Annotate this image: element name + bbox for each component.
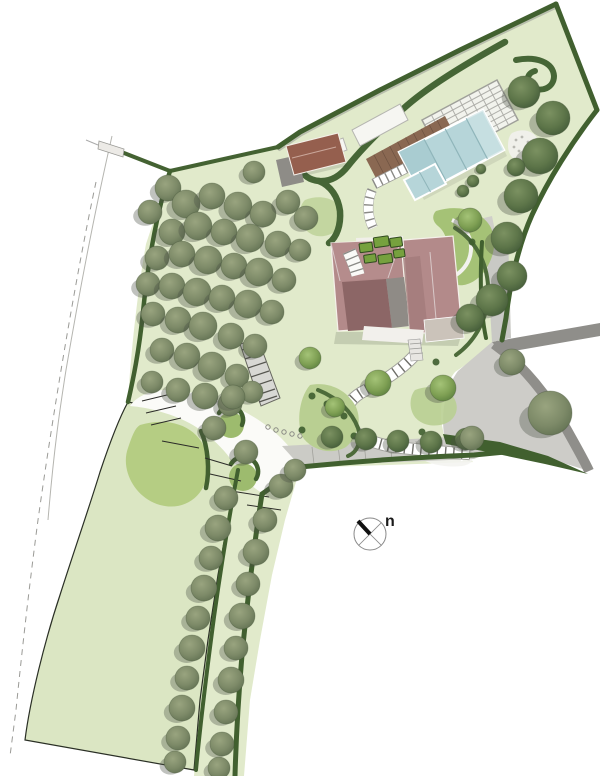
compass-needle (358, 521, 370, 534)
tree-canopy (138, 200, 162, 224)
tree-canopy (289, 239, 311, 261)
tree-canopy (169, 695, 195, 721)
tree-canopy (141, 371, 163, 393)
site-plan: n (0, 0, 600, 776)
tree-canopy (218, 667, 244, 693)
tree-canopy (179, 635, 205, 661)
tree-canopy (224, 636, 248, 660)
tree-canopy (234, 440, 258, 464)
tree-canopy (189, 312, 217, 340)
tree-canopy (365, 370, 391, 396)
north-compass: n (354, 513, 395, 550)
planter-box (364, 254, 377, 264)
tree-canopy (457, 185, 469, 197)
tree-canopy (221, 385, 245, 409)
planter-box (359, 242, 373, 253)
tree-canopy (499, 349, 525, 375)
tree-canopy (420, 431, 442, 453)
tree-canopy (214, 486, 238, 510)
tree-canopy (299, 347, 321, 369)
tree-canopy (294, 206, 318, 230)
wall-tail (86, 140, 98, 145)
tree-canopy (272, 268, 296, 292)
tree-canopy (497, 261, 527, 291)
tree-canopy (507, 158, 525, 176)
tree-canopy (476, 164, 486, 174)
courtyard-steps (349, 251, 358, 275)
tree-canopy (175, 666, 199, 690)
tree-canopy (458, 208, 482, 232)
planter-box (373, 236, 389, 248)
tree-canopy (236, 572, 260, 596)
tree-canopy (186, 606, 210, 630)
tree-canopy (210, 732, 234, 756)
tree-canopy (387, 430, 409, 452)
tree-canopy (536, 101, 570, 135)
tree-canopy (467, 175, 479, 187)
tree-canopy (202, 416, 226, 440)
tree-canopy (504, 179, 538, 213)
tree-canopy (260, 300, 284, 324)
tree-canopy (199, 546, 223, 570)
tree-canopy (214, 700, 238, 724)
tree-canopy (243, 161, 265, 183)
tree-canopy (528, 391, 572, 435)
tree-canopy (284, 459, 306, 481)
planter-box (393, 249, 405, 258)
tree-canopy (243, 539, 269, 565)
tree-canopy (166, 726, 190, 750)
tree-canopy (430, 375, 456, 401)
entry-stair (408, 339, 423, 361)
tree-canopy (208, 757, 230, 776)
planter-box (378, 253, 393, 264)
tree-canopy (355, 428, 377, 450)
wall-cap (98, 141, 124, 157)
tree-canopy (456, 304, 484, 332)
tree-canopy (236, 224, 264, 252)
tree-canopy (491, 222, 523, 254)
tree-canopy (508, 76, 540, 108)
tree-canopy (205, 515, 231, 541)
tree-canopy (325, 397, 345, 417)
planter-box (390, 237, 403, 248)
tree-canopy (321, 426, 343, 448)
tree-canopy (229, 603, 255, 629)
main-house (331, 234, 464, 361)
tree-canopy (522, 138, 558, 174)
tree-canopy (253, 508, 277, 532)
contour-solid (48, 136, 112, 520)
compass-label: n (385, 513, 395, 530)
tree-canopy (191, 575, 217, 601)
tree-canopy (243, 334, 267, 358)
tree-canopy (460, 426, 484, 450)
site-plan-svg: n (0, 0, 600, 776)
curved-garden-steps (368, 190, 373, 228)
tree-canopy (164, 751, 186, 773)
left-wing-dark-slope (342, 279, 392, 331)
tree-canopy (166, 378, 190, 402)
